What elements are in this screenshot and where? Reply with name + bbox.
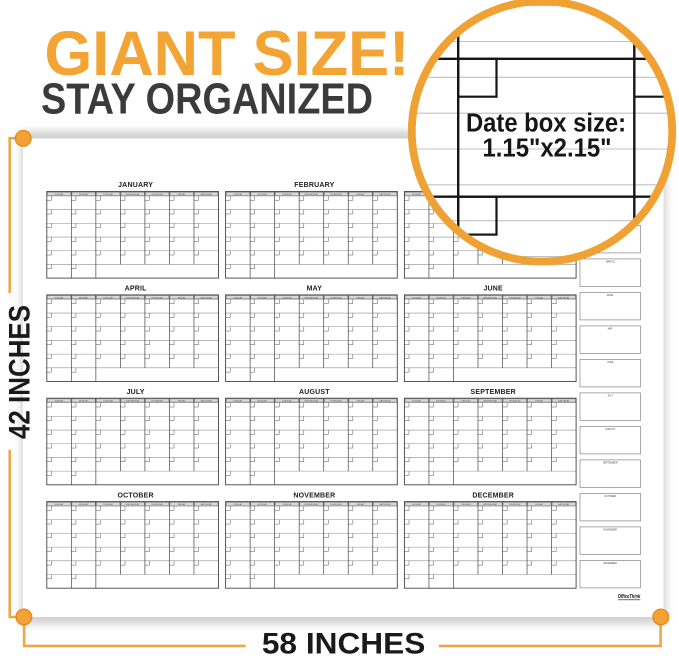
svg-text:OCTOBER: OCTOBER <box>117 492 153 499</box>
svg-text:TUESDAY: TUESDAY <box>461 400 472 403</box>
svg-text:SEPTEMBER: SEPTEMBER <box>471 389 516 396</box>
svg-text:MONDAY: MONDAY <box>436 296 446 299</box>
svg-text:MONDAY: MONDAY <box>436 503 446 506</box>
svg-text:SUNDAY: SUNDAY <box>55 296 64 299</box>
svg-text:FRIDAY: FRIDAY <box>357 400 365 403</box>
svg-text:FRIDAY: FRIDAY <box>535 503 543 506</box>
svg-text:THURSDAY: THURSDAY <box>509 503 521 506</box>
svg-text:THURSDAY: THURSDAY <box>151 296 163 299</box>
svg-text:SUNDAY: SUNDAY <box>55 193 64 196</box>
svg-text:JULY: JULY <box>127 389 145 396</box>
svg-text:OCTOBER: OCTOBER <box>604 495 616 498</box>
svg-text:JUNE: JUNE <box>483 286 503 293</box>
svg-text:JUNE: JUNE <box>607 361 614 364</box>
svg-text:SATURDAY: SATURDAY <box>200 296 212 299</box>
svg-text:SATURDAY: SATURDAY <box>200 400 212 403</box>
svg-text:SATURDAY: SATURDAY <box>200 503 212 506</box>
svg-text:THURSDAY: THURSDAY <box>151 400 163 403</box>
svg-text:WEDNESDAY: WEDNESDAY <box>483 400 497 403</box>
svg-text:FRIDAY: FRIDAY <box>178 296 186 299</box>
svg-text:MONDAY: MONDAY <box>258 193 268 196</box>
svg-text:FRIDAY: FRIDAY <box>535 400 543 403</box>
svg-text:MONDAY: MONDAY <box>79 503 89 506</box>
svg-text:TUESDAY: TUESDAY <box>461 296 472 299</box>
svg-text:TUESDAY: TUESDAY <box>103 503 114 506</box>
svg-text:DECEMBER: DECEMBER <box>603 562 617 565</box>
svg-text:TUESDAY: TUESDAY <box>103 193 114 196</box>
svg-text:WEDNESDAY: WEDNESDAY <box>126 503 140 506</box>
svg-text:SATURDAY: SATURDAY <box>200 193 212 196</box>
svg-text:MONDAY: MONDAY <box>79 296 89 299</box>
svg-text:FRIDAY: FRIDAY <box>178 193 186 196</box>
svg-text:SUNDAY: SUNDAY <box>233 503 242 506</box>
svg-text:AUGUST: AUGUST <box>299 389 330 396</box>
svg-text:THURSDAY: THURSDAY <box>330 296 342 299</box>
svg-text:FRIDAY: FRIDAY <box>178 503 186 506</box>
svg-text:SUNDAY: SUNDAY <box>412 503 421 506</box>
svg-text:FRIDAY: FRIDAY <box>357 193 365 196</box>
svg-text:SUNDAY: SUNDAY <box>412 193 421 196</box>
svg-text:TUESDAY: TUESDAY <box>461 503 472 506</box>
svg-text:MONDAY: MONDAY <box>258 296 268 299</box>
svg-text:WEDNESDAY: WEDNESDAY <box>304 503 318 506</box>
svg-text:WEDNESDAY: WEDNESDAY <box>483 296 497 299</box>
svg-text:58 INCHES: 58 INCHES <box>262 628 426 656</box>
svg-text:MONDAY: MONDAY <box>436 400 446 403</box>
svg-text:AUGUST: AUGUST <box>605 428 616 431</box>
svg-text:WEDNESDAY: WEDNESDAY <box>304 193 318 196</box>
svg-text:WEDNESDAY: WEDNESDAY <box>304 400 318 403</box>
svg-text:SATURDAY: SATURDAY <box>558 400 570 403</box>
svg-text:THURSDAY: THURSDAY <box>151 503 163 506</box>
svg-text:OfficeThink: OfficeThink <box>618 594 641 600</box>
svg-text:SATURDAY: SATURDAY <box>558 296 570 299</box>
svg-text:APRIL: APRIL <box>607 294 615 297</box>
svg-text:SUNDAY: SUNDAY <box>233 400 242 403</box>
svg-text:MONDAY: MONDAY <box>258 400 268 403</box>
svg-text:SUNDAY: SUNDAY <box>55 400 64 403</box>
svg-text:42 INCHES: 42 INCHES <box>4 305 37 439</box>
svg-text:TUESDAY: TUESDAY <box>282 193 293 196</box>
svg-text:MONDAY: MONDAY <box>79 400 89 403</box>
svg-text:WEDNESDAY: WEDNESDAY <box>126 400 140 403</box>
svg-text:THURSDAY: THURSDAY <box>330 400 342 403</box>
svg-text:TUESDAY: TUESDAY <box>282 400 293 403</box>
svg-text:SATURDAY: SATURDAY <box>379 400 391 403</box>
svg-text:JULY: JULY <box>607 395 613 398</box>
svg-text:THURSDAY: THURSDAY <box>509 400 521 403</box>
svg-text:FEBRUARY: FEBRUARY <box>294 182 334 189</box>
svg-text:FRIDAY: FRIDAY <box>178 400 186 403</box>
svg-text:1.15"x2.15": 1.15"x2.15" <box>483 134 612 162</box>
svg-text:SATURDAY: SATURDAY <box>379 503 391 506</box>
svg-text:FRIDAY: FRIDAY <box>357 296 365 299</box>
svg-text:NOVEMBER: NOVEMBER <box>603 529 617 532</box>
svg-text:STAY ORGANIZED: STAY ORGANIZED <box>41 75 373 123</box>
svg-text:FRIDAY: FRIDAY <box>535 296 543 299</box>
svg-text:SUNDAY: SUNDAY <box>233 193 242 196</box>
svg-text:TUESDAY: TUESDAY <box>282 503 293 506</box>
svg-text:TUESDAY: TUESDAY <box>103 296 114 299</box>
svg-text:SEPTEMBER: SEPTEMBER <box>603 462 618 465</box>
svg-text:THURSDAY: THURSDAY <box>151 193 163 196</box>
svg-text:MONDAY: MONDAY <box>258 503 268 506</box>
svg-text:NOVEMBER: NOVEMBER <box>293 492 335 499</box>
svg-text:TUESDAY: TUESDAY <box>282 296 293 299</box>
svg-text:THURSDAY: THURSDAY <box>509 296 521 299</box>
svg-text:APRIL: APRIL <box>125 286 148 293</box>
svg-text:THURSDAY: THURSDAY <box>330 503 342 506</box>
svg-text:SUNDAY: SUNDAY <box>412 400 421 403</box>
svg-text:THURSDAY: THURSDAY <box>330 193 342 196</box>
svg-text:DECEMBER: DECEMBER <box>472 492 514 499</box>
svg-text:SATURDAY: SATURDAY <box>379 296 391 299</box>
svg-text:WEDNESDAY: WEDNESDAY <box>304 296 318 299</box>
svg-text:MONDAY: MONDAY <box>79 193 89 196</box>
svg-text:MAY: MAY <box>307 286 323 293</box>
svg-text:JANUARY: JANUARY <box>118 182 153 189</box>
svg-text:SUNDAY: SUNDAY <box>412 296 421 299</box>
svg-text:SATURDAY: SATURDAY <box>558 503 570 506</box>
svg-text:TUESDAY: TUESDAY <box>103 400 114 403</box>
svg-text:SUNDAY: SUNDAY <box>233 296 242 299</box>
svg-text:WEDNESDAY: WEDNESDAY <box>126 193 140 196</box>
svg-text:SATURDAY: SATURDAY <box>379 193 391 196</box>
svg-text:MAY: MAY <box>608 328 613 331</box>
svg-text:MARCH: MARCH <box>606 261 615 264</box>
svg-text:SUNDAY: SUNDAY <box>55 503 64 506</box>
svg-text:WEDNESDAY: WEDNESDAY <box>126 296 140 299</box>
svg-text:WEDNESDAY: WEDNESDAY <box>483 503 497 506</box>
svg-text:FRIDAY: FRIDAY <box>357 503 365 506</box>
